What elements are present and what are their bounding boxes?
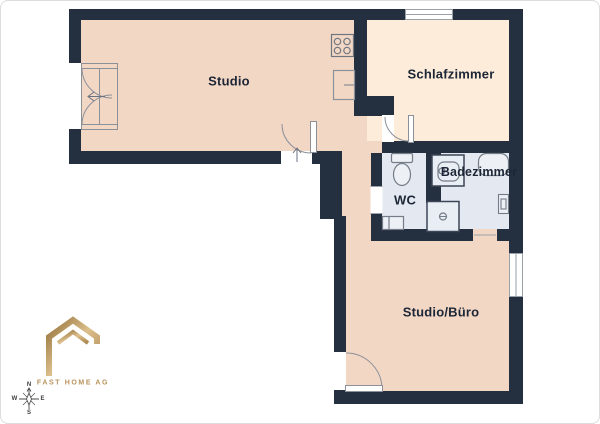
room-label-studio-buero: Studio/Büro: [403, 305, 480, 320]
compass-south-label: S: [27, 410, 31, 416]
wall-office-left: [334, 216, 346, 353]
wall-bath-bottom: [371, 229, 509, 241]
wall-right: [509, 9, 523, 404]
wall-stub: [354, 96, 394, 116]
wall-hall-left: [320, 164, 342, 219]
brand-logo-text: FAST HOME AG: [37, 380, 109, 387]
room-label-wc: WC: [394, 193, 416, 208]
floorplan-canvas: Studio Schlafzimmer WC Badezimmer Studio…: [0, 0, 600, 424]
room-label-studio: Studio: [208, 74, 250, 89]
hallway-floor: [342, 151, 371, 246]
compass-east-label: E: [40, 396, 44, 402]
room-bath-floor-2: [426, 203, 441, 229]
wall-bedroom-bottom: [382, 141, 523, 153]
compass-icon: [19, 388, 39, 409]
wall-left: [69, 9, 81, 164]
room-label-badezimmer: Badezimmer: [441, 165, 517, 179]
wall-top: [69, 9, 523, 20]
wall-kitchen: [354, 20, 367, 97]
compass-west-label: W: [12, 396, 18, 402]
wall-wc-bath: [426, 153, 441, 203]
wall-hall-wc: [371, 153, 382, 234]
brand-logo-icon: [49, 320, 97, 376]
wall-office-bottom: [334, 391, 523, 404]
room-wc-floor: [382, 153, 426, 229]
room-label-schlafzimmer: Schlafzimmer: [408, 67, 495, 82]
wall-studio-bottom: [69, 151, 342, 164]
compass-north-label: N: [27, 382, 31, 388]
